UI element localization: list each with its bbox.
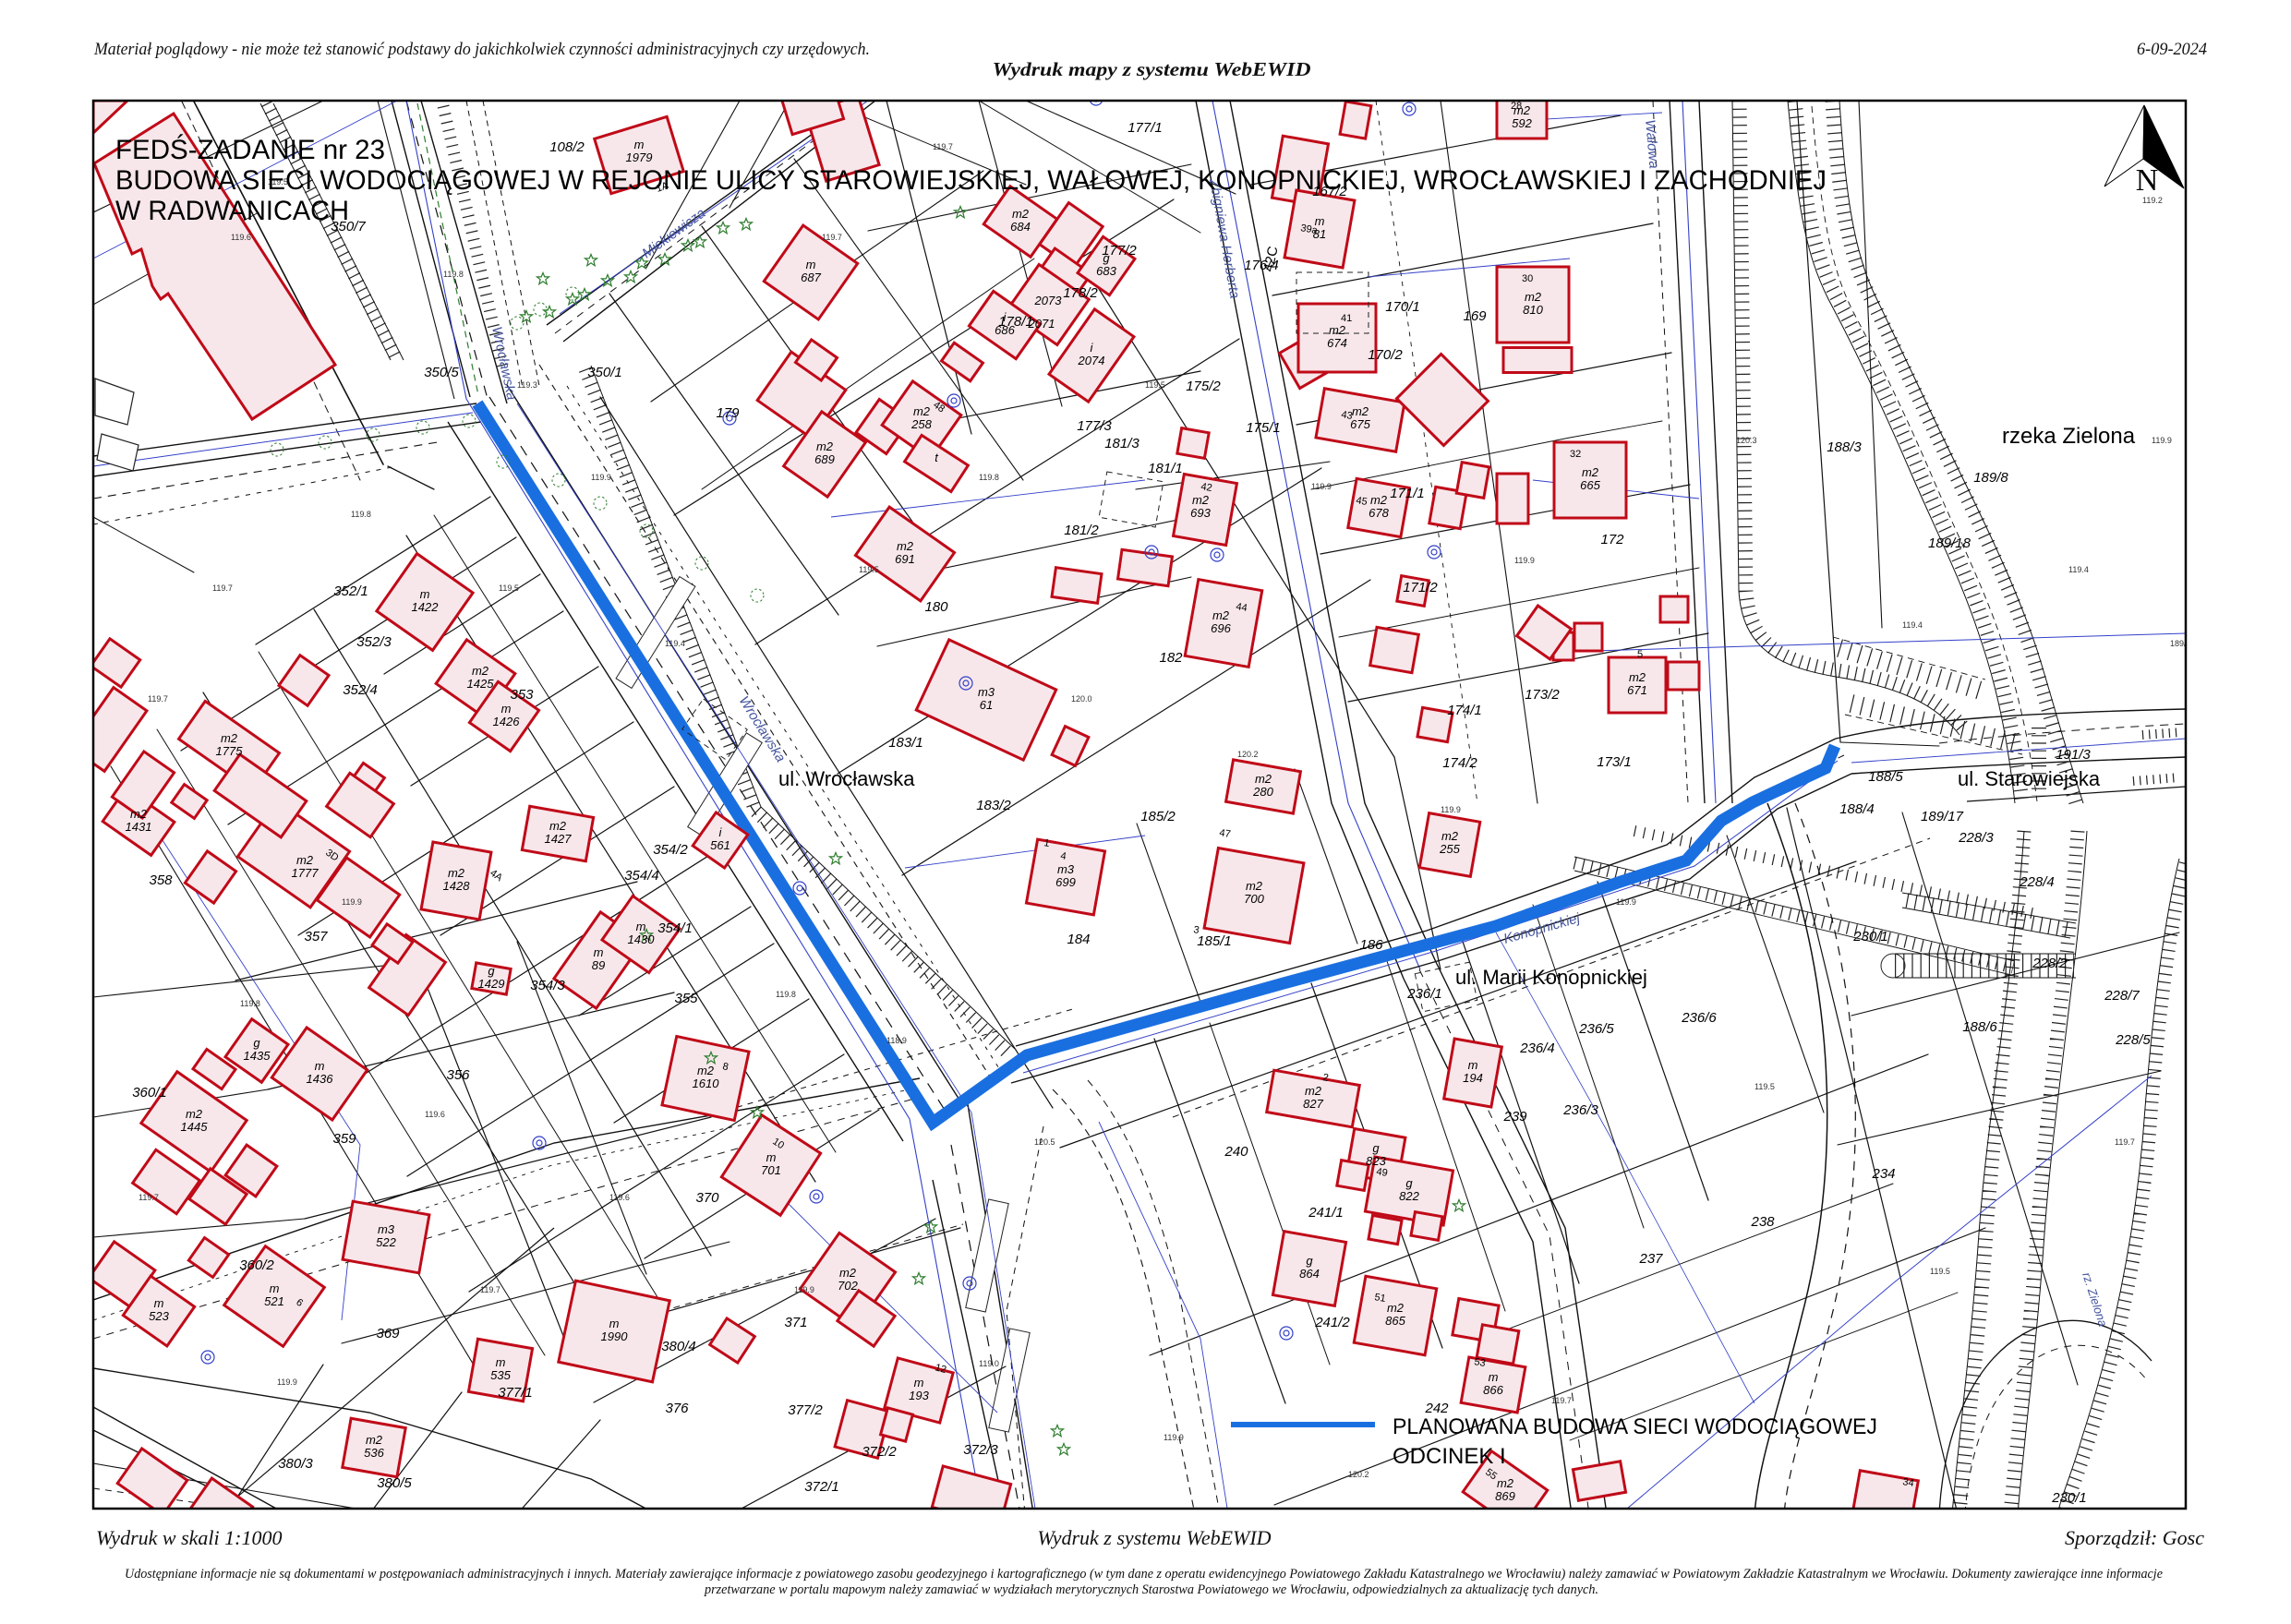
svg-text:89: 89 xyxy=(592,958,605,972)
svg-text:Wydruk w skali 1:1000: Wydruk w skali 1:1000 xyxy=(96,1526,282,1549)
svg-text:Udostępniane informacje nie są: Udostępniane informacje nie są dokumenta… xyxy=(125,1567,2163,1582)
svg-text:m: m xyxy=(154,1296,164,1310)
svg-text:181/1: 181/1 xyxy=(1148,461,1183,476)
svg-text:m2: m2 xyxy=(221,731,238,745)
svg-text:354/4: 354/4 xyxy=(624,868,659,884)
svg-text:ul. Starowiejska: ul. Starowiejska xyxy=(1958,767,2101,790)
svg-text:g: g xyxy=(1372,1141,1380,1155)
svg-text:170/1: 170/1 xyxy=(1385,299,1420,315)
svg-text:350/5: 350/5 xyxy=(424,365,459,380)
svg-text:N: N xyxy=(2136,163,2159,198)
svg-text:120.3: 120.3 xyxy=(1736,436,1757,445)
svg-text:47: 47 xyxy=(1218,827,1231,840)
svg-text:32: 32 xyxy=(1570,449,1581,460)
svg-text:173/2: 173/2 xyxy=(1525,687,1560,703)
svg-text:m2: m2 xyxy=(1255,772,1272,786)
svg-text:119.5: 119.5 xyxy=(859,565,879,574)
svg-text:370: 370 xyxy=(695,1190,719,1206)
svg-text:188/6: 188/6 xyxy=(1962,1019,1997,1035)
svg-text:689: 689 xyxy=(814,452,835,466)
svg-text:m2: m2 xyxy=(1212,608,1230,622)
svg-text:185/2: 185/2 xyxy=(1140,809,1176,824)
svg-text:377/2: 377/2 xyxy=(788,1402,823,1418)
svg-text:376: 376 xyxy=(665,1401,689,1416)
svg-text:355: 355 xyxy=(674,991,698,1006)
svg-text:241/2: 241/2 xyxy=(1314,1315,1350,1330)
svg-text:53: 53 xyxy=(1473,1356,1486,1369)
svg-text:228/5: 228/5 xyxy=(2115,1032,2151,1048)
svg-text:193: 193 xyxy=(909,1389,929,1402)
svg-text:665: 665 xyxy=(1580,478,1600,492)
svg-text:380/5: 380/5 xyxy=(377,1475,412,1491)
svg-text:42: 42 xyxy=(1200,481,1212,494)
svg-text:g: g xyxy=(1405,1176,1413,1190)
svg-text:m: m xyxy=(501,702,512,716)
svg-text:228/3: 228/3 xyxy=(1958,830,1994,846)
svg-text:1428: 1428 xyxy=(443,879,471,893)
svg-text:189/8: 189/8 xyxy=(1973,470,2008,486)
svg-text:175/2: 175/2 xyxy=(1186,379,1221,394)
svg-text:352/1: 352/1 xyxy=(333,583,368,599)
svg-text:119.8: 119.8 xyxy=(776,990,796,999)
svg-text:119.6: 119.6 xyxy=(609,1193,630,1202)
svg-text:Wydruk z systemu WebEWID: Wydruk z systemu WebEWID xyxy=(1037,1526,1271,1549)
svg-text:119.7: 119.7 xyxy=(2115,1137,2135,1147)
svg-text:230/1: 230/1 xyxy=(1852,929,1888,944)
svg-text:171/2: 171/2 xyxy=(1403,580,1438,595)
svg-text:119.7: 119.7 xyxy=(139,1193,159,1202)
svg-text:m: m xyxy=(914,1376,924,1389)
svg-text:119.7: 119.7 xyxy=(933,142,953,151)
svg-text:173/1: 173/1 xyxy=(1597,754,1632,770)
svg-text:m2: m2 xyxy=(1246,879,1263,893)
svg-text:674: 674 xyxy=(1327,336,1347,350)
svg-text:119.8: 119.8 xyxy=(240,999,260,1008)
svg-text:236/3: 236/3 xyxy=(1562,1102,1598,1118)
svg-text:m: m xyxy=(1489,1370,1499,1384)
svg-text:174/1: 174/1 xyxy=(1447,703,1482,718)
svg-text:119.5: 119.5 xyxy=(1145,380,1165,390)
svg-text:1425: 1425 xyxy=(467,677,495,691)
svg-text:353: 353 xyxy=(510,687,534,703)
svg-text:g: g xyxy=(253,1036,260,1050)
svg-text:41: 41 xyxy=(1341,313,1352,324)
svg-text:1429: 1429 xyxy=(478,977,505,991)
svg-text:864: 864 xyxy=(1299,1267,1320,1281)
svg-text:m2: m2 xyxy=(913,404,931,418)
svg-text:m: m xyxy=(270,1281,280,1295)
svg-text:228/2: 228/2 xyxy=(2032,956,2068,971)
svg-text:239: 239 xyxy=(1502,1109,1527,1125)
svg-text:354/1: 354/1 xyxy=(657,920,693,936)
svg-text:przetwarzane w portalu mapowym: przetwarzane w portalu mapowym należy za… xyxy=(704,1582,1598,1597)
svg-text:372/3: 372/3 xyxy=(963,1442,998,1458)
svg-text:523: 523 xyxy=(149,1309,169,1323)
svg-text:119.9: 119.9 xyxy=(2152,436,2172,445)
svg-text:m2: m2 xyxy=(1525,290,1542,304)
svg-text:119.9: 119.9 xyxy=(794,1285,814,1294)
svg-text:183/1: 183/1 xyxy=(888,735,923,751)
svg-text:m2: m2 xyxy=(697,1064,715,1077)
svg-text:120.2: 120.2 xyxy=(1348,1470,1369,1479)
svg-text:184: 184 xyxy=(1067,932,1090,947)
svg-text:255: 255 xyxy=(1439,842,1460,856)
svg-text:1777: 1777 xyxy=(292,866,320,880)
svg-text:Sporządził: Gosc: Sporządził: Gosc xyxy=(2065,1526,2204,1549)
svg-text:183/2: 183/2 xyxy=(976,798,1011,813)
svg-text:352/3: 352/3 xyxy=(356,634,392,650)
svg-text:61: 61 xyxy=(980,698,993,712)
svg-text:372/1: 372/1 xyxy=(804,1479,839,1495)
svg-text:2073: 2073 xyxy=(1034,294,1063,307)
svg-text:m: m xyxy=(315,1059,325,1073)
svg-text:m: m xyxy=(420,587,430,601)
svg-text:191/3: 191/3 xyxy=(2056,747,2091,763)
svg-text:172: 172 xyxy=(1600,532,1624,547)
svg-text:m2: m2 xyxy=(1629,670,1646,684)
svg-text:180: 180 xyxy=(924,599,948,615)
svg-text:356: 356 xyxy=(446,1067,470,1083)
svg-text:170/2: 170/2 xyxy=(1368,347,1403,363)
svg-text:179: 179 xyxy=(716,405,740,421)
svg-text:380/4: 380/4 xyxy=(661,1339,696,1354)
svg-text:280: 280 xyxy=(1252,785,1273,799)
svg-text:119.9: 119.9 xyxy=(1616,897,1636,907)
svg-text:m2: m2 xyxy=(1497,1476,1514,1490)
svg-text:m2: m2 xyxy=(1582,465,1599,479)
svg-text:m3: m3 xyxy=(978,685,995,699)
svg-text:119.0: 119.0 xyxy=(979,1359,999,1368)
svg-text:182: 182 xyxy=(1159,650,1183,666)
svg-text:228/4: 228/4 xyxy=(2019,874,2055,890)
svg-text:120.2: 120.2 xyxy=(1237,750,1259,759)
svg-text:119.9: 119.9 xyxy=(342,897,362,907)
svg-text:228/7: 228/7 xyxy=(2104,988,2140,1004)
svg-text:119.7: 119.7 xyxy=(822,233,842,242)
svg-text:865: 865 xyxy=(1385,1314,1405,1328)
svg-text:34: 34 xyxy=(1901,1476,1914,1489)
svg-text:188/3: 188/3 xyxy=(1827,439,1862,455)
svg-text:823: 823 xyxy=(1366,1154,1386,1168)
svg-text:119.9: 119.9 xyxy=(591,473,611,482)
svg-text:181/2: 181/2 xyxy=(1064,523,1099,538)
svg-text:194: 194 xyxy=(1463,1071,1483,1085)
svg-text:51: 51 xyxy=(1373,1292,1386,1305)
svg-text:671: 671 xyxy=(1627,683,1647,697)
svg-text:m: m xyxy=(806,258,816,271)
svg-text:m: m xyxy=(634,138,645,151)
svg-text:230/1: 230/1 xyxy=(2051,1490,2087,1506)
svg-text:119.7: 119.7 xyxy=(480,1285,500,1294)
svg-text:696: 696 xyxy=(1211,621,1231,635)
svg-text:372/2: 372/2 xyxy=(862,1444,897,1460)
svg-text:687: 687 xyxy=(801,271,821,284)
svg-text:178/2: 178/2 xyxy=(1063,285,1098,301)
svg-text:592: 592 xyxy=(1512,116,1532,130)
svg-text:m2: m2 xyxy=(1305,1084,1322,1098)
svg-text:m2: m2 xyxy=(1329,323,1346,337)
svg-text:119.5: 119.5 xyxy=(499,583,519,593)
svg-text:360/2: 360/2 xyxy=(239,1257,274,1273)
svg-text:174/2: 174/2 xyxy=(1442,755,1477,771)
svg-text:m2: m2 xyxy=(1012,207,1030,221)
svg-text:5: 5 xyxy=(1637,649,1643,660)
svg-text:1610: 1610 xyxy=(693,1077,720,1090)
svg-text:350/1: 350/1 xyxy=(587,365,622,380)
svg-text:380/3: 380/3 xyxy=(278,1456,313,1472)
svg-text:234: 234 xyxy=(1871,1166,1895,1182)
svg-text:359: 359 xyxy=(332,1131,356,1147)
svg-text:119.6: 119.6 xyxy=(425,1110,445,1119)
svg-text:120.0: 120.0 xyxy=(1071,694,1092,704)
svg-text:357: 357 xyxy=(304,929,328,944)
svg-text:m2: m2 xyxy=(296,853,314,867)
svg-text:49: 49 xyxy=(1375,1166,1388,1179)
svg-text:FEDŚ-ZADANIE nr 23: FEDŚ-ZADANIE nr 23 xyxy=(115,134,385,165)
svg-text:m2: m2 xyxy=(816,439,834,453)
svg-text:g: g xyxy=(488,964,495,978)
svg-text:m2: m2 xyxy=(472,664,489,678)
svg-text:371: 371 xyxy=(784,1315,807,1330)
svg-text:177/3: 177/3 xyxy=(1077,418,1112,434)
svg-text:m: m xyxy=(609,1317,620,1330)
svg-text:m: m xyxy=(496,1355,506,1369)
svg-text:1435: 1435 xyxy=(244,1049,271,1063)
svg-text:43: 43 xyxy=(1340,409,1353,422)
svg-text:119.8: 119.8 xyxy=(351,510,371,519)
svg-text:702: 702 xyxy=(838,1279,858,1293)
svg-text:rzeka Zielona: rzeka Zielona xyxy=(2002,424,2136,449)
svg-text:1427: 1427 xyxy=(545,832,573,846)
svg-text:810: 810 xyxy=(1523,303,1543,317)
svg-text:236/5: 236/5 xyxy=(1578,1021,1614,1037)
svg-text:522: 522 xyxy=(376,1235,396,1249)
svg-text:675: 675 xyxy=(1350,417,1370,431)
svg-text:m2: m2 xyxy=(897,539,914,553)
svg-text:m2: m2 xyxy=(1370,493,1388,507)
svg-text:171/1: 171/1 xyxy=(1390,486,1425,501)
svg-text:240: 240 xyxy=(1224,1144,1248,1160)
svg-text:354/2: 354/2 xyxy=(653,842,688,858)
svg-text:684: 684 xyxy=(1010,220,1031,234)
svg-text:30: 30 xyxy=(1522,273,1533,284)
svg-text:189/18: 189/18 xyxy=(1928,535,1971,551)
svg-text:m2: m2 xyxy=(448,866,465,880)
svg-text:1431: 1431 xyxy=(126,820,152,834)
svg-text:W RADWANICACH: W RADWANICACH xyxy=(115,196,349,226)
svg-text:119.4: 119.4 xyxy=(2068,565,2089,574)
svg-text:352/4: 352/4 xyxy=(343,682,378,698)
svg-text:822: 822 xyxy=(1399,1189,1419,1203)
svg-text:686: 686 xyxy=(995,323,1015,337)
svg-text:m2: m2 xyxy=(1387,1301,1405,1315)
svg-text:6-09-2024: 6-09-2024 xyxy=(2137,40,2207,59)
svg-text:m: m xyxy=(1468,1058,1478,1072)
svg-text:693: 693 xyxy=(1190,506,1211,520)
svg-text:120.5: 120.5 xyxy=(1034,1137,1055,1147)
svg-text:678: 678 xyxy=(1369,506,1389,520)
svg-text:186: 186 xyxy=(1359,937,1383,953)
svg-text:258: 258 xyxy=(910,417,932,431)
svg-text:1426: 1426 xyxy=(493,715,521,728)
svg-text:377/1: 377/1 xyxy=(498,1385,533,1401)
svg-text:m3: m3 xyxy=(378,1222,395,1236)
svg-text:237: 237 xyxy=(1638,1251,1663,1267)
svg-text:119.9: 119.9 xyxy=(1441,805,1461,814)
svg-text:m2: m2 xyxy=(1441,829,1459,843)
svg-text:m2: m2 xyxy=(366,1433,383,1447)
svg-text:238: 238 xyxy=(1750,1214,1775,1230)
svg-text:m2: m2 xyxy=(549,819,567,833)
svg-text:m2: m2 xyxy=(1192,493,1210,507)
svg-text:236/6: 236/6 xyxy=(1681,1010,1717,1026)
svg-text:28: 28 xyxy=(1511,101,1522,112)
svg-text:1775: 1775 xyxy=(216,744,244,758)
svg-text:369: 369 xyxy=(376,1326,400,1341)
svg-text:521: 521 xyxy=(264,1294,284,1308)
svg-text:119.7: 119.7 xyxy=(212,583,233,593)
svg-text:827: 827 xyxy=(1303,1097,1323,1111)
svg-text:185/1: 185/1 xyxy=(1197,933,1232,949)
svg-text:1430: 1430 xyxy=(628,932,656,946)
svg-text:m2: m2 xyxy=(130,807,148,821)
svg-text:119.5: 119.5 xyxy=(1754,1082,1775,1091)
svg-text:118.9: 118.9 xyxy=(886,1036,907,1045)
svg-text:561: 561 xyxy=(710,838,730,852)
svg-text:188/5: 188/5 xyxy=(1868,769,1903,785)
svg-text:119.3: 119.3 xyxy=(517,380,537,390)
svg-text:119.4: 119.4 xyxy=(1902,620,1923,630)
svg-text:45: 45 xyxy=(1355,495,1368,508)
svg-text:358: 358 xyxy=(149,872,173,888)
svg-text:119.5: 119.5 xyxy=(1930,1267,1950,1276)
svg-text:536: 536 xyxy=(364,1446,384,1460)
svg-text:119.7: 119.7 xyxy=(1551,1396,1572,1405)
svg-text:119.8: 119.8 xyxy=(979,473,999,482)
svg-text:236/1: 236/1 xyxy=(1406,986,1442,1002)
svg-text:g: g xyxy=(1103,251,1110,265)
svg-text:m: m xyxy=(766,1150,777,1164)
svg-text:169: 169 xyxy=(1463,308,1487,324)
svg-text:869: 869 xyxy=(1495,1489,1515,1503)
svg-text:m2: m2 xyxy=(839,1266,857,1280)
svg-text:236/4: 236/4 xyxy=(1519,1041,1555,1056)
svg-text:1979: 1979 xyxy=(626,150,653,164)
svg-text:ul. Wrocławska: ul. Wrocławska xyxy=(778,767,915,790)
svg-text:m: m xyxy=(594,945,604,959)
svg-text:119.9: 119.9 xyxy=(1514,556,1535,565)
svg-text:1436: 1436 xyxy=(307,1072,334,1086)
svg-text:701: 701 xyxy=(761,1163,781,1177)
svg-text:119.6: 119.6 xyxy=(231,233,251,242)
svg-text:535: 535 xyxy=(490,1368,511,1382)
svg-text:ODCINEK I: ODCINEK I xyxy=(1393,1444,1506,1469)
svg-text:119.9: 119.9 xyxy=(1164,1433,1184,1442)
svg-text:119.9: 119.9 xyxy=(277,1377,297,1387)
svg-text:g: g xyxy=(1306,1254,1313,1268)
svg-text:m2: m2 xyxy=(1352,404,1369,418)
svg-text:700: 700 xyxy=(1244,892,1264,906)
svg-text:119.7: 119.7 xyxy=(148,694,168,704)
svg-text:188/4: 188/4 xyxy=(1839,801,1875,817)
svg-text:Wydruk mapy z systemu WebEWID: Wydruk mapy z systemu WebEWID xyxy=(993,58,1311,80)
svg-text:m3: m3 xyxy=(1057,862,1075,876)
svg-text:44: 44 xyxy=(1235,601,1248,614)
svg-text:119.9: 119.9 xyxy=(1311,482,1332,491)
svg-text:1422: 1422 xyxy=(412,600,440,614)
svg-text:2074: 2074 xyxy=(1078,354,1105,367)
svg-text:1990: 1990 xyxy=(601,1329,629,1343)
svg-text:354/3: 354/3 xyxy=(530,978,565,993)
svg-text:108/2: 108/2 xyxy=(549,139,585,155)
svg-text:175/1: 175/1 xyxy=(1246,420,1281,436)
svg-text:119.4: 119.4 xyxy=(665,639,685,648)
svg-text:m2: m2 xyxy=(186,1107,203,1121)
svg-text:ul. Marii Konopnickiej: ul. Marii Konopnickiej xyxy=(1455,966,1647,989)
svg-text:PLANOWANA BUDOWA SIECI WODOCIĄ: PLANOWANA BUDOWA SIECI WODOCIĄGOWEJ xyxy=(1393,1414,1877,1439)
svg-text:683: 683 xyxy=(1096,264,1116,278)
svg-text:Materiał poglądowy - nie może: Materiał poglądowy - nie może też stanow… xyxy=(93,40,870,59)
svg-text:699: 699 xyxy=(1055,875,1076,889)
svg-text:1445: 1445 xyxy=(181,1120,209,1134)
svg-text:241/1: 241/1 xyxy=(1308,1205,1344,1221)
svg-text:177/1: 177/1 xyxy=(1127,120,1163,136)
svg-text:360/1: 360/1 xyxy=(132,1085,167,1101)
svg-text:119.8: 119.8 xyxy=(443,270,464,279)
svg-text:691: 691 xyxy=(895,552,915,566)
svg-text:866: 866 xyxy=(1483,1383,1503,1397)
svg-text:181/3: 181/3 xyxy=(1104,436,1139,451)
svg-text:BUDOWA SIECI WODOCIĄGOWEJ W RE: BUDOWA SIECI WODOCIĄGOWEJ W REJONIE ULIC… xyxy=(115,165,1827,196)
svg-text:2071: 2071 xyxy=(1028,317,1055,331)
svg-text:189/17: 189/17 xyxy=(1921,809,1964,824)
svg-text:m: m xyxy=(636,920,646,933)
